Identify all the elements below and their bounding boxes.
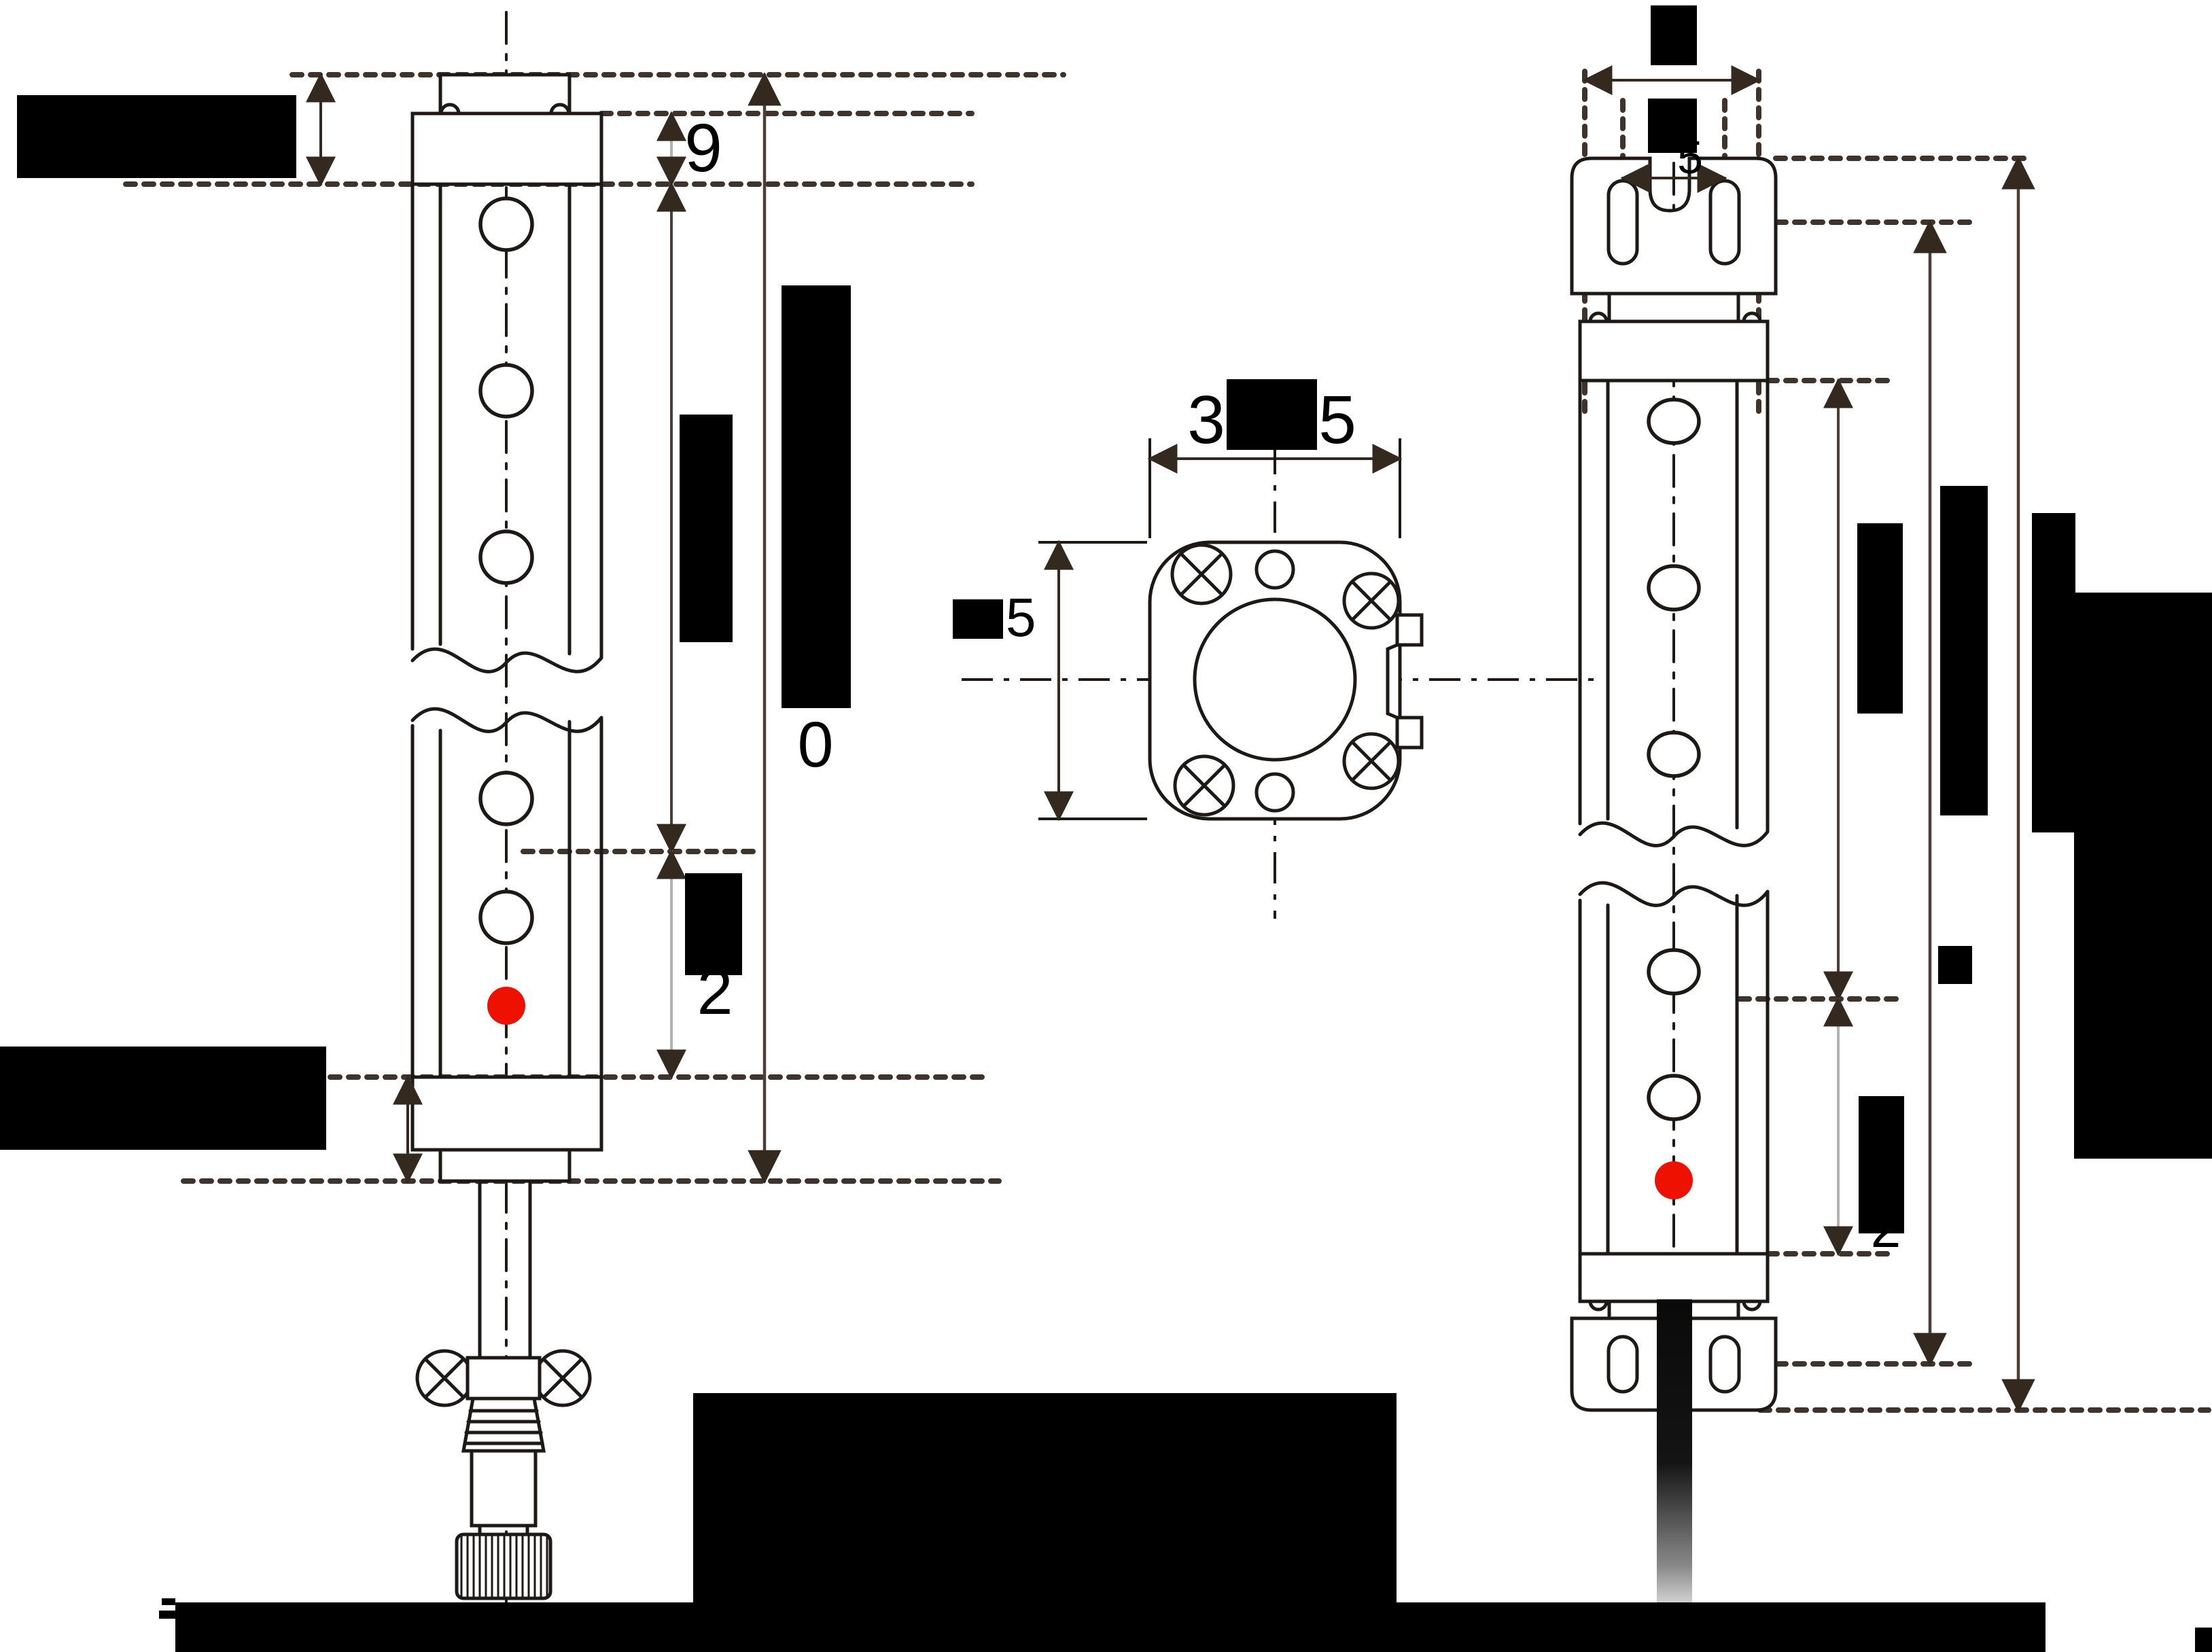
redaction-box [1651, 5, 1697, 65]
rear-cable [1657, 1299, 1692, 1624]
connector-screw-left [417, 1351, 472, 1405]
section-view: 3 5 5 [953, 379, 1594, 919]
technical-drawing: 9 2 0 [0, 0, 2212, 1652]
section-width-label-suffix: 5 [1318, 382, 1356, 458]
section-screw [1344, 574, 1399, 628]
bracket-slot [1710, 1337, 1739, 1392]
section-screw [1172, 545, 1231, 603]
redaction-box [953, 599, 1003, 639]
front-dashed-references [126, 75, 1064, 1181]
redaction-box [1938, 946, 1972, 984]
redaction-fragment [2195, 1628, 2212, 1652]
bracket-slot [1609, 1337, 1637, 1392]
section-screw [1175, 756, 1233, 815]
section-width-label-prefix: 3 [1187, 382, 1225, 458]
redaction-box [782, 285, 851, 708]
bracket-slot [1710, 181, 1739, 264]
redaction-box [2032, 513, 2075, 832]
front-view: 9 2 0 [0, 12, 1064, 1609]
front-connector [417, 1181, 590, 1598]
bracket-slot [1609, 181, 1637, 264]
section-screw [1344, 734, 1399, 788]
redaction-box [17, 95, 296, 178]
redaction-box [2074, 593, 2212, 1159]
drawing-canvas: 9 2 0 [0, 0, 2212, 1652]
redaction-box [0, 1047, 326, 1150]
section-height-label: 5 [1006, 587, 1036, 648]
section-lens-bore [1195, 599, 1355, 760]
redaction-box [693, 1393, 1397, 1602]
redaction-box [1940, 486, 1988, 815]
redaction-box [1859, 1096, 1904, 1233]
redaction-box [175, 1602, 2046, 1652]
dimension-label-total-length: 0 [798, 709, 834, 781]
redaction-box [685, 873, 742, 975]
redaction-box [680, 415, 733, 642]
redaction-box [1227, 379, 1317, 450]
redaction-box [1648, 99, 1697, 153]
front-bottom-cap [412, 1077, 601, 1181]
connector-screw-right [536, 1351, 590, 1405]
redaction-fragment [159, 1611, 177, 1619]
dimension-label-cap-height: 9 [684, 110, 722, 186]
redaction-box [1857, 523, 1903, 714]
redaction-fragment [162, 1598, 175, 1605]
red-indicator-led [487, 987, 525, 1025]
rear-top-cap [1580, 294, 1768, 381]
rear-view: 5 2 [1572, 5, 2212, 1624]
red-indicator-led [1655, 1161, 1693, 1199]
front-top-cap [412, 75, 601, 184]
section-profile [1150, 542, 1422, 819]
connector-knurled-nut [457, 1534, 550, 1598]
